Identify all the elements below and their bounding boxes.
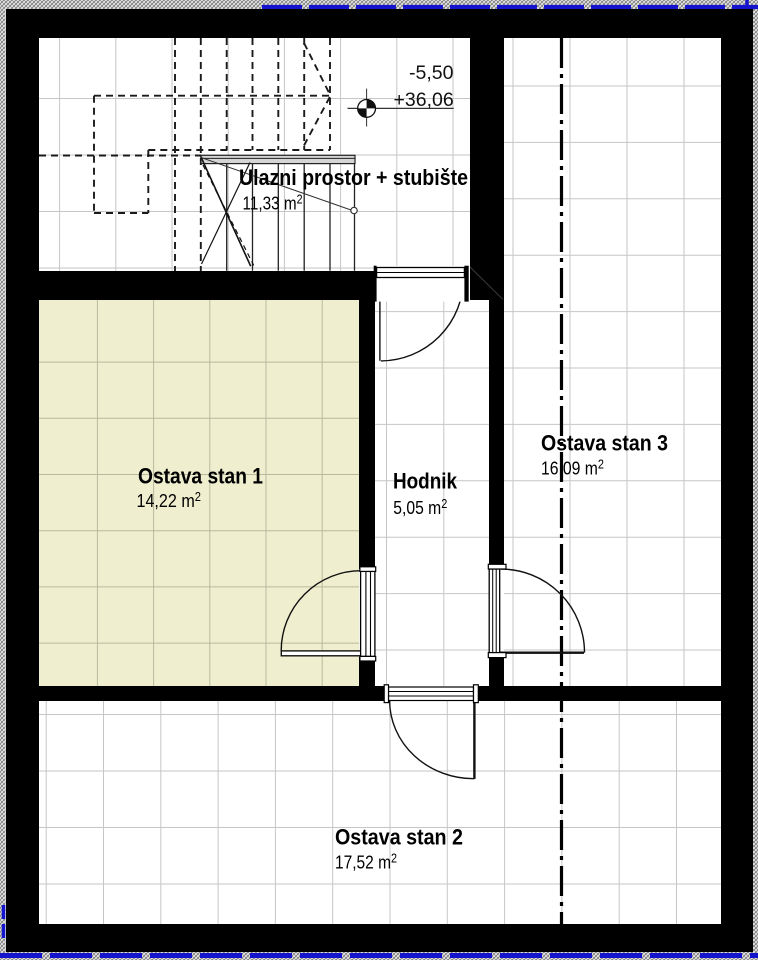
- svg-text:Ulazni prostor + stubište: Ulazni prostor + stubište: [239, 165, 468, 190]
- svg-text:14,22 m2: 14,22 m2: [137, 490, 202, 511]
- svg-text:Ostava stan 2: Ostava stan 2: [335, 825, 463, 850]
- svg-text:Ostava stan 1: Ostava stan 1: [138, 464, 263, 489]
- svg-text:5,05 m2: 5,05 m2: [393, 497, 447, 518]
- svg-text:17,52 m2: 17,52 m2: [335, 852, 397, 873]
- svg-text:+36,06: +36,06: [394, 89, 454, 111]
- svg-text:-5,50: -5,50: [409, 62, 454, 84]
- svg-text:Ostava stan 3: Ostava stan 3: [541, 431, 668, 456]
- svg-text:16,09 m2: 16,09 m2: [541, 458, 604, 479]
- svg-text:11,33 m2: 11,33 m2: [243, 193, 303, 214]
- svg-text:Hodnik: Hodnik: [393, 469, 458, 494]
